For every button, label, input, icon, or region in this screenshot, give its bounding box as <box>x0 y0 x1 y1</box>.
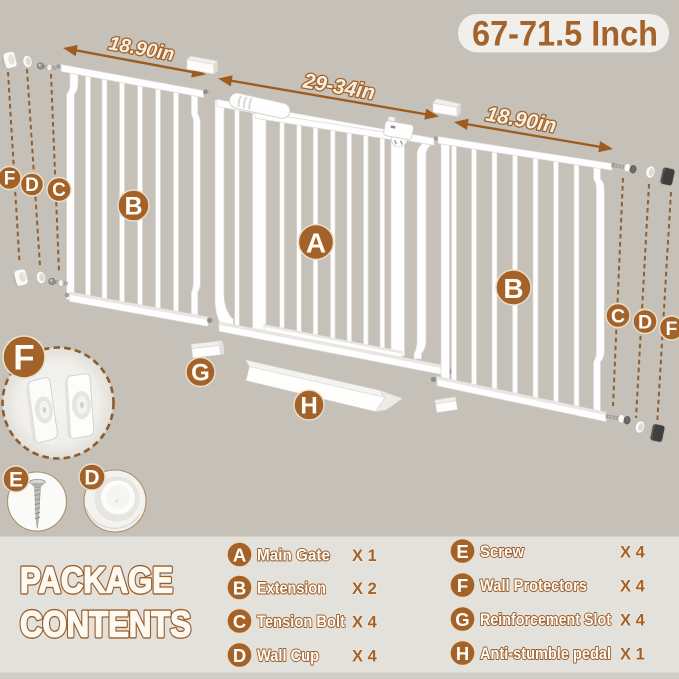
svg-text:X 4: X 4 <box>620 578 646 596</box>
svg-text:Tension Bolt: Tension Bolt <box>257 613 345 631</box>
svg-text:Extension: Extension <box>257 580 326 598</box>
svg-text:X 4: X 4 <box>620 544 646 562</box>
svg-text:G: G <box>191 360 210 387</box>
svg-text:Anti-stumble pedal: Anti-stumble pedal <box>480 645 611 663</box>
svg-text:D: D <box>84 466 99 489</box>
svg-text:F: F <box>4 168 16 189</box>
svg-text:D: D <box>25 175 39 196</box>
svg-text:Screw: Screw <box>480 543 524 561</box>
svg-text:C: C <box>52 180 66 201</box>
svg-text:E: E <box>456 541 468 562</box>
svg-text:D: D <box>233 645 246 666</box>
svg-text:Wall Protectors: Wall Protectors <box>480 577 587 595</box>
svg-text:A: A <box>306 228 326 259</box>
svg-text:B: B <box>233 578 246 599</box>
svg-text:67-71.5 Inch: 67-71.5 Inch <box>472 15 658 54</box>
svg-text:F: F <box>666 318 678 340</box>
svg-text:H: H <box>300 393 317 420</box>
svg-text:X 4: X 4 <box>352 614 378 632</box>
svg-text:C: C <box>233 611 246 632</box>
svg-text:F: F <box>13 339 34 378</box>
svg-text:PACKAGE: PACKAGE <box>20 560 173 601</box>
svg-text:B: B <box>124 193 142 221</box>
svg-text:D: D <box>638 311 652 333</box>
svg-text:A: A <box>233 545 246 566</box>
svg-text:Main Gate: Main Gate <box>257 547 330 565</box>
svg-text:C: C <box>611 305 625 327</box>
svg-text:Wall Cup: Wall Cup <box>257 647 319 665</box>
svg-text:X 1: X 1 <box>352 547 377 565</box>
svg-text:B: B <box>503 273 523 304</box>
svg-text:E: E <box>9 468 23 491</box>
svg-text:X 2: X 2 <box>352 580 377 598</box>
svg-text:X 4: X 4 <box>352 648 378 666</box>
svg-text:X 4: X 4 <box>620 612 646 630</box>
svg-text:X 1: X 1 <box>620 646 645 664</box>
svg-text:CONTENTS: CONTENTS <box>20 604 191 645</box>
svg-text:H: H <box>456 643 469 664</box>
svg-text:G: G <box>455 609 469 630</box>
svg-text:F: F <box>457 575 468 596</box>
svg-text:Reinforcement Slot: Reinforcement Slot <box>480 611 611 629</box>
